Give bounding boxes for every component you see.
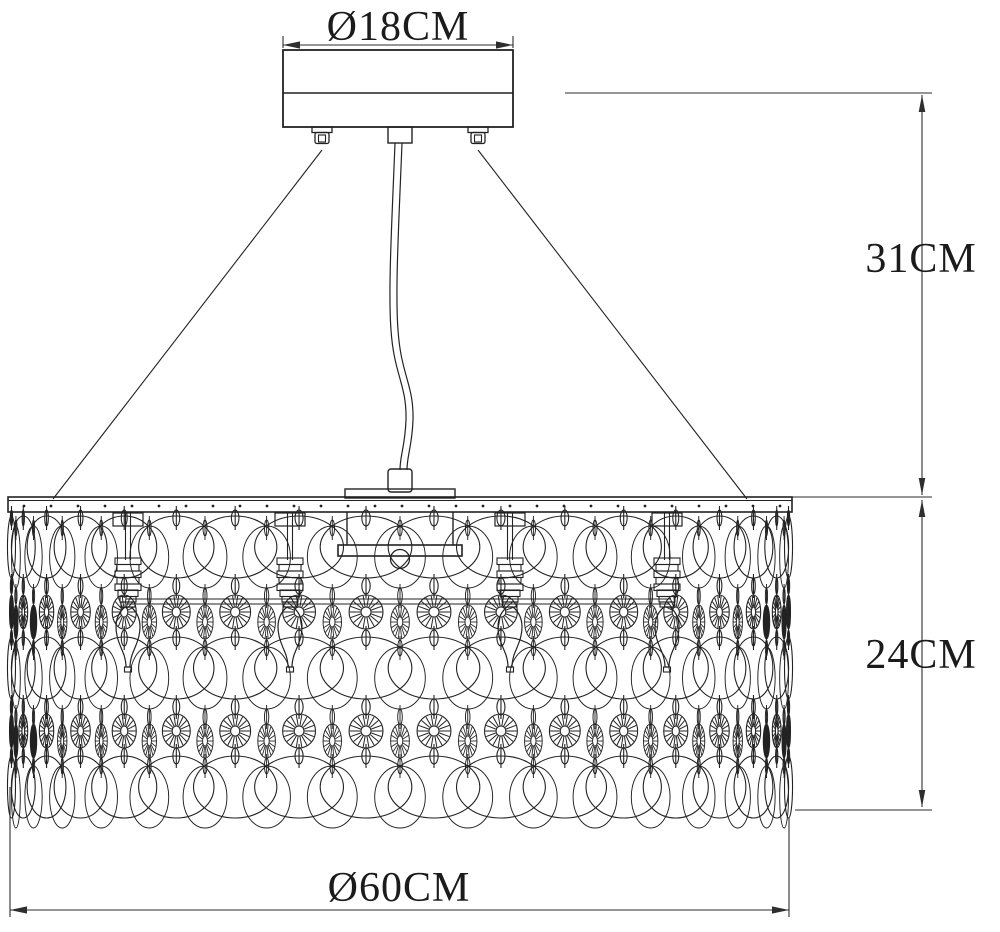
starburst-hole xyxy=(560,726,569,736)
starburst-spoke xyxy=(611,725,619,729)
starburst-spoke xyxy=(284,614,294,618)
starburst-spoke xyxy=(79,618,80,628)
starburst-hole xyxy=(99,736,103,746)
starburst-spoke xyxy=(221,606,230,610)
starburst-disc-edge xyxy=(782,605,786,639)
starburst-hole xyxy=(560,607,569,617)
starburst-spoke xyxy=(737,725,738,735)
starburst-spoke xyxy=(204,725,205,735)
starburst-spoke xyxy=(81,715,82,725)
socket-rib xyxy=(115,558,141,565)
rim-rivet xyxy=(77,505,80,508)
starburst-spoke xyxy=(439,725,449,729)
starburst-spoke xyxy=(122,737,123,747)
starburst-spoke xyxy=(371,614,381,618)
starburst-spoke xyxy=(534,747,535,757)
starburst-hole xyxy=(294,726,304,736)
starburst-spoke xyxy=(265,747,266,757)
suspension-cable-right xyxy=(478,150,747,499)
starburst-hole xyxy=(330,617,336,627)
cord-edge xyxy=(397,143,413,470)
rim-rivet xyxy=(590,505,593,508)
starburst-spoke xyxy=(81,596,82,606)
starburst-spoke xyxy=(718,596,719,606)
starburst-hole xyxy=(397,736,403,746)
starburst-spoke xyxy=(333,747,334,757)
starburst-spoke xyxy=(718,715,719,725)
starburst-spoke xyxy=(122,596,123,606)
starburst-spoke xyxy=(304,614,314,618)
starburst-disc-edge xyxy=(787,714,791,748)
starburst-spoke xyxy=(621,737,622,747)
rim-rivet xyxy=(401,505,404,508)
starburst-spoke xyxy=(625,618,626,628)
starburst-spoke xyxy=(333,606,334,616)
starburst-spoke xyxy=(625,596,626,606)
starburst-spoke xyxy=(371,725,381,729)
starburst-spoke xyxy=(562,737,564,747)
dim-shade-height: 24CM xyxy=(790,497,977,810)
starburst-spoke xyxy=(594,725,595,735)
starburst-spoke xyxy=(532,725,533,735)
starburst-spoke xyxy=(506,614,516,618)
starburst-hole xyxy=(620,607,628,617)
starburst-hole xyxy=(78,607,84,617)
rim-rivet xyxy=(266,505,269,508)
starburst-spoke xyxy=(649,606,650,616)
starburst-spoke xyxy=(205,628,206,638)
starburst-spoke xyxy=(367,618,369,628)
starburst-hole xyxy=(496,726,506,736)
starburst-spoke xyxy=(81,737,82,747)
chandelier-dimension-drawing: Ø18CM 31CM 24CM Ø60CM xyxy=(0,0,1000,932)
starburst-spoke xyxy=(468,725,469,735)
starburst-spoke xyxy=(164,725,172,729)
arrowhead-icon xyxy=(496,41,513,48)
starburst-spoke xyxy=(205,606,206,616)
starburst-spoke xyxy=(486,725,496,729)
starburst-hole xyxy=(361,607,371,617)
starburst-spoke xyxy=(351,606,361,610)
starburst-spoke xyxy=(401,725,402,735)
arrowhead-icon xyxy=(919,790,926,807)
starburst-spoke xyxy=(532,747,533,757)
starburst-spoke xyxy=(566,618,568,628)
starburst-spoke xyxy=(674,618,675,628)
starburst-hole xyxy=(44,607,48,617)
starburst-spoke xyxy=(148,725,149,735)
starburst-hole xyxy=(531,736,536,746)
socket-rib xyxy=(117,565,139,572)
starburst-spoke xyxy=(502,715,504,725)
starburst-hole xyxy=(203,736,208,746)
rim-rivet xyxy=(320,505,323,508)
starburst-spoke xyxy=(439,614,449,618)
starburst-spoke xyxy=(738,725,739,735)
starburst-spoke xyxy=(651,725,652,735)
starburst-hole xyxy=(775,726,778,736)
drawing-page: Ø18CM 31CM 24CM Ø60CM xyxy=(0,0,1000,932)
starburst-spoke xyxy=(371,733,381,737)
starburst-spoke xyxy=(676,737,677,747)
starburst-spoke xyxy=(431,715,433,725)
starburst-spoke xyxy=(419,606,429,610)
starburst-spoke xyxy=(240,606,249,610)
starburst-hole xyxy=(717,607,723,617)
starburst-spoke xyxy=(61,628,62,638)
starburst-hole xyxy=(172,607,180,617)
starburst-spoke xyxy=(532,606,533,616)
starburst-spoke xyxy=(150,747,151,757)
starburst-spoke xyxy=(628,606,636,610)
starburst-spoke xyxy=(595,747,596,757)
starburst-spoke xyxy=(367,596,369,606)
starburst-spoke xyxy=(284,725,294,729)
starburst-spoke xyxy=(150,725,151,735)
starburst-spoke xyxy=(401,747,402,757)
rim-rivet xyxy=(428,505,431,508)
starburst-spoke xyxy=(205,725,206,735)
starburst-spoke xyxy=(551,614,560,618)
starburst-hole xyxy=(465,617,471,627)
starburst-spoke xyxy=(81,618,82,628)
rim-rivet xyxy=(509,505,512,508)
socket-rib xyxy=(656,565,678,572)
starburst-spoke xyxy=(628,725,636,729)
canopy-body xyxy=(283,50,513,127)
starburst-spoke xyxy=(174,737,175,747)
starburst-spoke xyxy=(718,618,719,628)
starburst-spoke xyxy=(431,596,433,606)
rim-rivet xyxy=(131,505,134,508)
starburst-spoke xyxy=(594,747,595,757)
starburst-spoke xyxy=(431,618,433,628)
starburst-hole xyxy=(172,726,180,736)
starburst-disc-edge xyxy=(14,605,18,639)
starburst-spoke xyxy=(150,628,151,638)
starburst-spoke xyxy=(570,725,579,729)
starburst-spoke xyxy=(651,628,652,638)
starburst-spoke xyxy=(351,614,361,618)
starburst-spoke xyxy=(233,715,235,725)
arrowhead-icon xyxy=(772,906,789,913)
starburst-spoke xyxy=(181,725,189,729)
starburst-spoke xyxy=(363,715,365,725)
starburst-spoke xyxy=(79,715,80,725)
starburst-spoke xyxy=(300,596,302,606)
starburst-spoke xyxy=(333,628,334,638)
starburst-spoke xyxy=(566,737,568,747)
arrowhead-icon xyxy=(919,500,926,517)
starburst-spoke xyxy=(738,628,739,638)
starburst-spoke xyxy=(435,737,437,747)
rim-rivet xyxy=(50,505,53,508)
starburst-hole xyxy=(203,617,208,627)
starburst-spoke xyxy=(628,733,636,737)
starburst-spoke xyxy=(486,614,496,618)
starburst-hole xyxy=(593,736,598,746)
rim-rivet xyxy=(644,505,647,508)
starburst-spoke xyxy=(676,715,677,725)
bulb-assembly xyxy=(275,512,305,672)
starburst-hole xyxy=(751,726,755,736)
starburst-spoke xyxy=(181,606,189,610)
starburst-hole xyxy=(649,736,653,746)
rim-rivet xyxy=(185,505,188,508)
starburst-spoke xyxy=(164,733,172,737)
starburst-hole xyxy=(593,617,598,627)
starburst-spoke xyxy=(737,606,738,616)
starburst-hole xyxy=(697,736,701,746)
starburst-spoke xyxy=(63,747,64,757)
starburst-spoke xyxy=(401,606,402,616)
starburst-hole xyxy=(672,726,679,736)
starburst-spoke xyxy=(233,618,235,628)
starburst-spoke xyxy=(177,618,178,628)
starburst-spoke xyxy=(506,725,516,729)
rim-rivet xyxy=(374,505,377,508)
starburst-spoke xyxy=(296,618,298,628)
starburst-hole xyxy=(61,736,64,746)
starburst-hole xyxy=(147,617,151,627)
starburst-hole xyxy=(99,617,103,627)
starburst-spoke xyxy=(738,606,739,616)
starburst-spoke xyxy=(331,747,332,757)
power-cord xyxy=(388,143,413,492)
starburst-spoke xyxy=(466,606,467,616)
starburst-spoke xyxy=(177,596,178,606)
starburst-disc-edge xyxy=(9,714,13,748)
starburst-spoke xyxy=(221,614,230,618)
starburst-spoke xyxy=(240,725,249,729)
starburst-spoke xyxy=(148,628,149,638)
starburst-spoke xyxy=(466,747,467,757)
starburst-spoke xyxy=(551,733,560,737)
starburst-spoke xyxy=(595,628,596,638)
starburst-hole xyxy=(61,617,64,627)
starburst-spoke xyxy=(304,606,314,610)
starburst-spoke xyxy=(205,747,206,757)
dim-canopy-diameter: Ø18CM xyxy=(283,4,513,50)
starburst-hole xyxy=(121,726,128,736)
starburst-disc-edge xyxy=(763,724,769,758)
starburst-spoke xyxy=(486,733,496,737)
starburst-spoke xyxy=(125,596,126,606)
starburst-spoke xyxy=(331,725,332,735)
starburst-spoke xyxy=(621,715,622,725)
starburst-spoke xyxy=(720,715,721,725)
starburst-spoke xyxy=(551,606,560,610)
starburst-spoke xyxy=(236,737,238,747)
starburst-spoke xyxy=(651,747,652,757)
starburst-spoke xyxy=(466,725,467,735)
starburst-spoke xyxy=(502,737,504,747)
starburst-hole xyxy=(751,607,755,617)
starburst-spoke xyxy=(122,618,123,628)
starburst-spoke xyxy=(676,596,677,606)
starburst-spoke xyxy=(628,614,636,618)
starburst-spoke xyxy=(236,715,238,725)
starburst-spoke xyxy=(534,725,535,735)
starburst-spoke xyxy=(498,715,500,725)
starburst-spoke xyxy=(331,606,332,616)
starburst-spoke xyxy=(181,614,189,618)
dim-canopy-diameter-label: Ø18CM xyxy=(327,4,470,50)
starburst-spoke xyxy=(204,628,205,638)
shade-rim xyxy=(8,497,792,512)
starburst-spoke xyxy=(562,618,564,628)
starburst-spoke xyxy=(300,737,302,747)
starburst-spoke xyxy=(333,725,334,735)
dim-suspension-height: 31CM xyxy=(565,93,977,495)
starburst-hole xyxy=(264,617,269,627)
starburst-spoke xyxy=(265,606,266,616)
starburst-spoke xyxy=(502,618,504,628)
bolt-hole xyxy=(319,135,326,142)
starburst-spoke xyxy=(566,715,568,725)
dim-shade-diameter: Ø60CM xyxy=(10,787,789,917)
cord-edge xyxy=(390,143,406,470)
suspension-cable-left xyxy=(53,150,322,499)
starburst-spoke xyxy=(63,725,64,735)
starburst-spoke xyxy=(79,596,80,606)
starburst-spoke xyxy=(611,733,619,737)
bulb-assembly xyxy=(113,512,143,672)
starburst-spoke xyxy=(595,725,596,735)
starburst-disc-edge xyxy=(30,724,36,758)
starburst-spoke xyxy=(534,628,535,638)
starburst-spoke xyxy=(595,606,596,616)
starburst-spoke xyxy=(562,596,564,606)
starburst-spoke xyxy=(398,725,399,735)
starburst-spoke xyxy=(61,606,62,616)
rim-rivet xyxy=(671,505,674,508)
starburst-spoke xyxy=(61,747,62,757)
starburst-spoke xyxy=(174,596,175,606)
starburst-spoke xyxy=(240,733,249,737)
starburst-spoke xyxy=(267,606,268,616)
starburst-spoke xyxy=(125,715,126,725)
starburst-spoke xyxy=(125,618,126,628)
starburst-disc-edge xyxy=(30,605,36,639)
starburst-spoke xyxy=(363,618,365,628)
starburst-spoke xyxy=(79,737,80,747)
starburst-spoke xyxy=(284,733,294,737)
starburst-spoke xyxy=(718,737,719,747)
rim-rivet xyxy=(698,505,701,508)
rim-rivet xyxy=(212,505,215,508)
starburst-spoke xyxy=(720,596,721,606)
starburst-hole xyxy=(672,607,679,617)
starburst-spoke xyxy=(265,725,266,735)
starburst-hole xyxy=(22,607,25,617)
rim-rivet xyxy=(239,505,242,508)
starburst-hole xyxy=(775,607,778,617)
starburst-spoke xyxy=(300,715,302,725)
starburst-spoke xyxy=(177,715,178,725)
starburst-spoke xyxy=(566,596,568,606)
starburst-hole xyxy=(649,617,653,627)
starburst-spoke xyxy=(363,737,365,747)
mounting-bolts xyxy=(312,127,488,144)
starburst-hole xyxy=(330,736,336,746)
arrowhead-icon xyxy=(283,41,300,48)
starburst-hole xyxy=(231,726,240,736)
rim-rivets xyxy=(23,505,782,508)
starburst-spoke xyxy=(570,614,579,618)
starburst-spoke xyxy=(401,628,402,638)
starburst-spoke xyxy=(532,628,533,638)
rim-rivet xyxy=(725,505,728,508)
starburst-spoke xyxy=(625,737,626,747)
starburst-spoke xyxy=(331,628,332,638)
dim-shade-height-label: 24CM xyxy=(865,632,976,678)
starburst-spoke xyxy=(419,725,429,729)
starburst-spoke xyxy=(674,737,675,747)
starburst-spoke xyxy=(570,606,579,610)
starburst-hole xyxy=(147,736,151,746)
rim-rivet xyxy=(293,505,296,508)
starburst-hole xyxy=(465,736,471,746)
starburst-spoke xyxy=(562,715,564,725)
starburst-spoke xyxy=(148,606,149,616)
rim-rivet xyxy=(158,505,161,508)
starburst-spoke xyxy=(570,733,579,737)
starburst-spoke xyxy=(221,733,230,737)
starburst-hole xyxy=(429,607,439,617)
starburst-spoke xyxy=(398,747,399,757)
starburst-spoke xyxy=(498,596,500,606)
starburst-disc-edge xyxy=(782,724,786,758)
starburst-spoke xyxy=(221,725,230,729)
starburst-spoke xyxy=(486,606,496,610)
starburst-spoke xyxy=(125,737,126,747)
starburst-spoke xyxy=(611,614,619,618)
starburst-spoke xyxy=(398,606,399,616)
starburst-hole xyxy=(736,617,739,627)
starburst-spoke xyxy=(164,606,172,610)
starburst-spoke xyxy=(737,747,738,757)
arrowhead-icon xyxy=(919,95,926,112)
starburst-spoke xyxy=(367,737,369,747)
starburst-spoke xyxy=(240,614,249,618)
rim-rivet xyxy=(104,505,107,508)
starburst-spoke xyxy=(419,733,429,737)
starburst-spoke xyxy=(621,618,622,628)
bulb-assembly xyxy=(495,512,525,672)
rim-rivet xyxy=(536,505,539,508)
starburst-spoke xyxy=(236,618,238,628)
starburst-spoke xyxy=(181,733,189,737)
starburst-spoke xyxy=(351,725,361,729)
starburst-spoke xyxy=(233,596,235,606)
starburst-spoke xyxy=(468,628,469,638)
starburst-hole xyxy=(264,736,269,746)
starburst-spoke xyxy=(431,737,433,747)
rim-rivet xyxy=(455,505,458,508)
starburst-disc-edge xyxy=(9,595,13,629)
starburst-spoke xyxy=(398,628,399,638)
starburst-spoke xyxy=(148,747,149,757)
hub-socket xyxy=(391,550,410,569)
starburst-spoke xyxy=(594,606,595,616)
starburst-spoke xyxy=(177,737,178,747)
starburst-spoke xyxy=(174,618,175,628)
starburst-spoke xyxy=(466,628,467,638)
starburst-spoke xyxy=(61,725,62,735)
rim-rivet xyxy=(779,505,782,508)
dim-suspension-height-label: 31CM xyxy=(865,236,976,282)
